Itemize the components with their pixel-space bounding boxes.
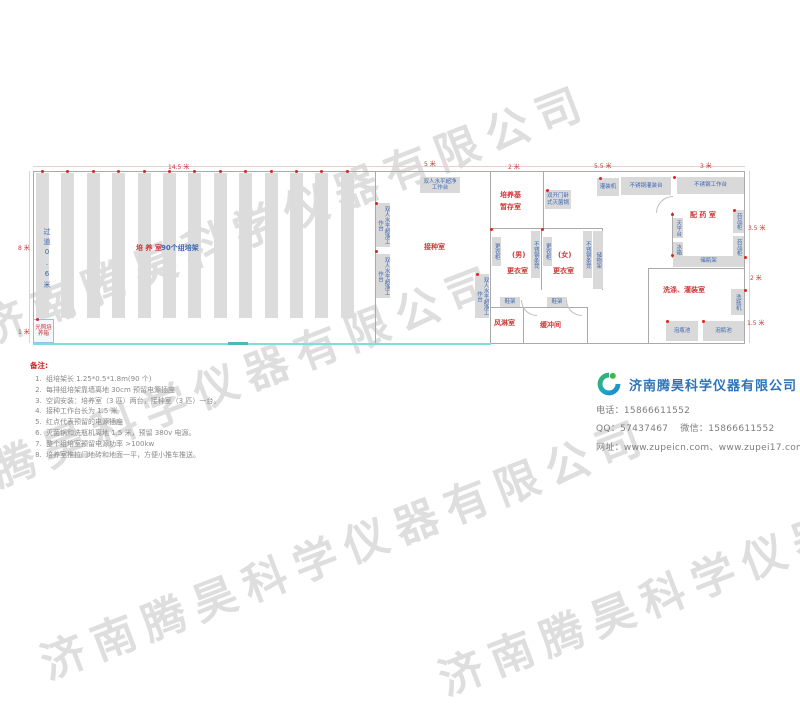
company-header: 济南腾昊科学仪器有限公司 (596, 371, 800, 397)
note-item: 组培架长 1.25*0.5*1.8m(90 个) (44, 374, 350, 385)
power-outlet-dot (92, 170, 95, 173)
room-label: 暂存室 (500, 202, 521, 212)
company-web-line: 网址：www.zupeicn.com、www.zupei17.com (596, 440, 800, 453)
web-label: 网址： (596, 443, 624, 453)
filling-machine: 灌装机 (597, 178, 619, 196)
bottle-rack: 储瓶架 (673, 256, 744, 267)
culture-rack (315, 173, 328, 318)
culture-rack (112, 173, 125, 318)
company-name: 济南腾昊科学仪器有限公司 (629, 375, 797, 394)
shoe-rack: 鞋架 (547, 297, 567, 307)
note-item: 灭菌锅和洗瓶机离地 1.5 米，预留 380v 电源。 (44, 428, 350, 439)
wall-segment (523, 307, 524, 343)
work-table: 不锈钢工作台 (677, 177, 744, 194)
note-item: 每排组培架靠墙离地 30cm 预留电源插座 (44, 385, 350, 396)
culture-rack (290, 173, 303, 318)
room-label: 洗涤、灌装室 (663, 285, 705, 295)
power-outlet-dot (375, 202, 378, 205)
room-label: 更衣室 (553, 266, 574, 276)
wall-segment (587, 307, 588, 343)
dimension-label: 3 米 (700, 161, 712, 170)
wall-segment (490, 228, 603, 229)
web-separator: 、 (709, 443, 718, 453)
power-outlet-dot (702, 320, 705, 323)
locker: 更衣柜 (492, 237, 501, 266)
power-outlet-dot (541, 228, 544, 231)
power-outlet-dot (744, 289, 747, 292)
wall-segment (541, 228, 542, 290)
balance-table: 天平台 (673, 218, 683, 238)
power-outlet-dot (744, 256, 747, 259)
culture-rack (341, 173, 354, 318)
wall-segment (490, 343, 745, 344)
wall-segment (648, 268, 649, 343)
medicine-cabinet: 药品柜 (733, 210, 744, 233)
dimension-label: 1.5 米 (747, 318, 764, 327)
soak-pool: 泡瓶池 (703, 321, 744, 341)
dimension-label: 14.5 米 (168, 162, 189, 171)
power-outlet-dot (41, 170, 44, 173)
bottle-washer: 洗瓶机 (731, 289, 744, 315)
website-1: www.zupeicn.com (624, 443, 710, 453)
note-item: 培养室推拉门地砖和地面一平，方便小推车推送。 (44, 450, 350, 461)
wall-segment (33, 166, 745, 167)
phone-value: 15866611552 (624, 406, 690, 416)
power-outlet-dot (673, 176, 676, 179)
power-outlet-dot (375, 250, 378, 253)
room-label: 培养基 (500, 190, 521, 200)
locker: 更衣柜 (543, 237, 552, 266)
notes-section: 备注: 组培架长 1.25*0.5*1.8m(90 个)每排组培架靠墙离地 30… (30, 360, 350, 460)
wall-segment (490, 171, 491, 343)
wall-segment (33, 171, 34, 343)
power-outlet-dot (270, 170, 273, 173)
power-outlet-dot (346, 170, 349, 173)
light-incubator: 光照培养箱 (33, 319, 54, 343)
laminar-bench: 双人水平超净工作台 (420, 177, 460, 193)
floor-plan: 双人水平超净工作台双人水平超净工作台双人水平超净工作台双人水平超净工作台双开门卧… (0, 0, 800, 600)
qq-label: QQ： (596, 424, 620, 434)
company-info: 济南腾昊科学仪器有限公司 电话：15866611552 QQ：57437467微… (596, 371, 800, 453)
power-outlet-dot (546, 189, 549, 192)
filling-table: 不锈钢灌装台 (621, 177, 671, 195)
room-label: 缓冲间 (540, 320, 561, 330)
room-label: (女) (558, 250, 571, 260)
power-outlet-dot (143, 170, 146, 173)
laminar-bench: 双人水平超净工作台 (475, 274, 489, 318)
dimension-label: 3.5 米 (748, 223, 765, 232)
steel-bench: 不锈钢条凳 (583, 231, 592, 278)
power-outlet-dot (490, 228, 493, 231)
annotation-label: 过道0.6米 (42, 228, 52, 291)
wall-segment (33, 343, 491, 345)
wall-segment (228, 342, 248, 345)
room-label: 接种室 (424, 242, 445, 252)
wechat-value: 15866611552 (708, 424, 774, 434)
wall-segment (648, 268, 745, 269)
culture-rack (61, 173, 74, 318)
note-item: 空调安装：培养室（3 匹）两台，接种室（3 匹）一台。 (44, 396, 350, 407)
shoe-rack: 鞋架 (500, 297, 520, 307)
notes-list: 组培架长 1.25*0.5*1.8m(90 个)每排组培架靠墙离地 30cm 预… (44, 374, 350, 460)
storage-rack: 储物架 (593, 231, 603, 289)
dimension-label: 1 米 (18, 327, 30, 336)
power-outlet-dot (36, 318, 39, 321)
dimension-label: 2 米 (750, 273, 762, 282)
power-outlet-dot (476, 273, 479, 276)
dimension-label: 5.5 米 (594, 161, 611, 170)
culture-rack (265, 173, 278, 318)
website-2: www.zupei17.com (719, 443, 800, 453)
power-outlet-dot (671, 254, 674, 257)
room-label: 培 养 室 (136, 243, 162, 253)
room-label: 风淋室 (494, 318, 515, 328)
company-qq-line: QQ：57437467微信：15866611552 (596, 421, 800, 434)
culture-rack (214, 173, 227, 318)
power-outlet-dot (219, 170, 222, 173)
notes-title: 备注: (30, 360, 350, 371)
power-outlet-dot (671, 213, 674, 216)
power-outlet-dot (599, 177, 602, 180)
wall-segment (33, 171, 745, 172)
room-label: (男) (512, 250, 525, 260)
dimension-label: 2 米 (508, 162, 520, 171)
soak-pool: 泡瓶池 (666, 321, 698, 341)
wall-segment (543, 171, 544, 229)
door-arc (656, 196, 673, 213)
room-label: 配 药 室 (690, 210, 716, 220)
room-label: 更衣室 (507, 266, 528, 276)
wechat-label: 微信： (680, 424, 708, 434)
company-logo-icon (596, 371, 622, 397)
laminar-bench: 双人水平超净工作台 (376, 203, 390, 247)
culture-rack (239, 173, 252, 318)
fridge: 冰箱 (673, 242, 683, 257)
phone-label: 电话： (596, 406, 624, 416)
wall-segment (29, 171, 30, 343)
power-outlet-dot (666, 320, 669, 323)
dimension-label: 8 米 (18, 243, 30, 252)
power-outlet-dot (733, 209, 736, 212)
annotation-label: 90个组培架 (161, 243, 199, 253)
sterilizer: 双开门卧式灭菌锅 (545, 190, 571, 209)
note-item: 红点代表预留的电源插座 (44, 417, 350, 428)
door-arc (566, 300, 582, 316)
power-outlet-dot (295, 170, 298, 173)
company-phone-line: 电话：15866611552 (596, 403, 800, 416)
culture-rack (87, 173, 100, 318)
note-item: 接种工作台长为 1.5 米 (44, 406, 350, 417)
dimension-label: 5 米 (424, 159, 436, 168)
laminar-bench: 双人水平超净工作台 (376, 254, 390, 298)
qq-value: 57437467 (620, 424, 668, 434)
steel-bench: 不锈钢条凳 (531, 231, 540, 278)
note-item: 整个组培室预留电源功率 >100kw (44, 439, 350, 450)
